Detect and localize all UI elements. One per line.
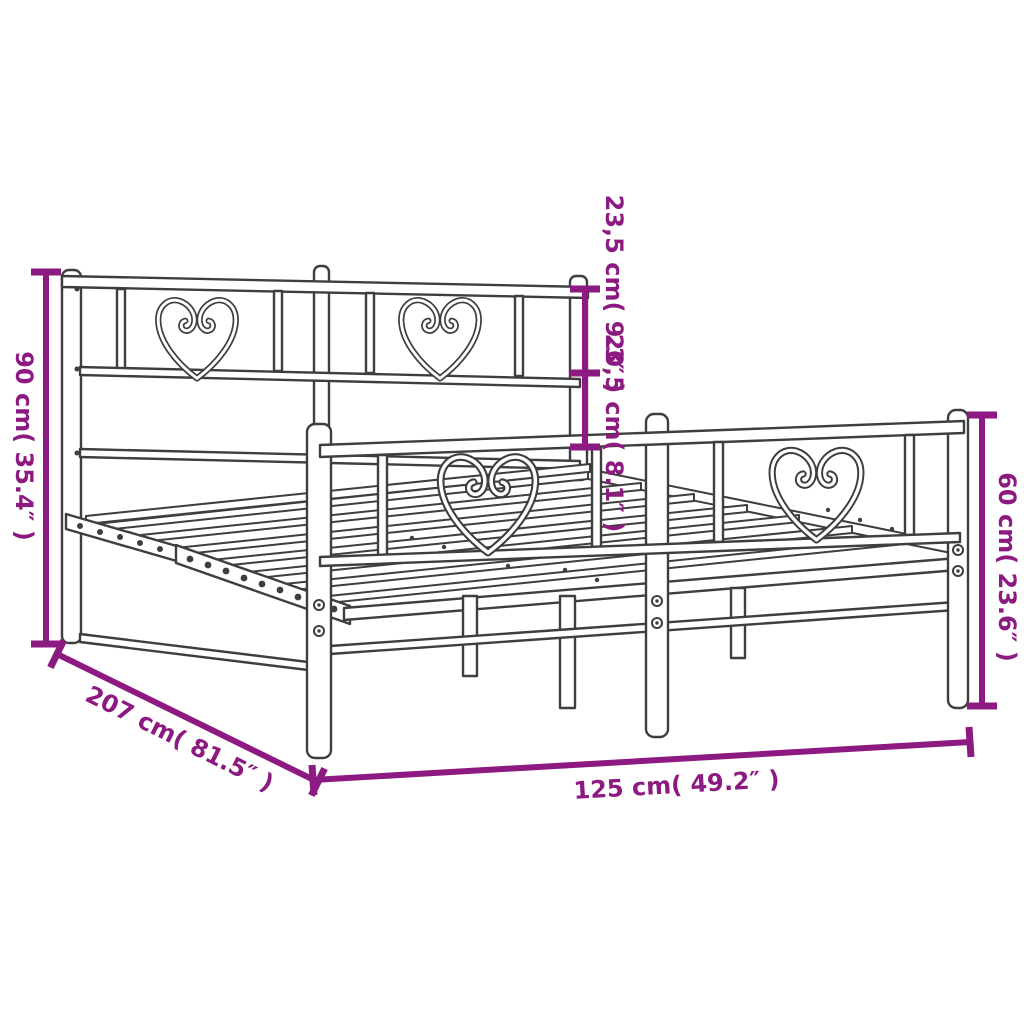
dimension-footboard-height: 60 cm( 23.6″ ) xyxy=(967,415,1021,706)
footboard-divider xyxy=(714,442,723,542)
headboard-heart-right-icon xyxy=(401,300,479,378)
side-stretcher xyxy=(80,634,308,670)
footboard-divider xyxy=(905,435,914,535)
dimension-overall-height: 90 cm( 35.4″ ) xyxy=(10,272,61,644)
footboard-right-post xyxy=(948,410,968,708)
dimension-bed-width: 125 cm( 49.2″ ) xyxy=(312,727,971,805)
bed-frame-diagram-canvas: 90 cm( 35.4″ ) 23,5 cm( 9.3″ ) 20,5 cm( … xyxy=(0,0,1024,1024)
bed-width-label: 125 cm( 49.2″ ) xyxy=(573,765,781,805)
headboard-divider xyxy=(274,291,282,371)
headboard-divider xyxy=(515,296,523,376)
footboard-center-post xyxy=(646,414,668,737)
footboard-height-label: 60 cm( 23.6″ ) xyxy=(993,472,1021,662)
headboard-divider xyxy=(117,289,125,369)
headboard-left-post xyxy=(62,270,81,643)
headboard-heart-left-icon xyxy=(158,300,236,378)
bed-length-label: 207 cm( 81.5″ ) xyxy=(81,680,278,797)
footboard-divider xyxy=(592,447,601,547)
product-dimension-diagram: 90 cm( 35.4″ ) 23,5 cm( 9.3″ ) 20,5 cm( … xyxy=(0,0,1024,1024)
bed-frame-illustration xyxy=(62,266,968,758)
footboard-left-post xyxy=(307,424,331,758)
overall-height-label: 90 cm( 35.4″ ) xyxy=(10,351,38,541)
support-leg xyxy=(560,596,575,708)
headboard-lower-section-label: 20,5 cm( 8.1″ ) xyxy=(600,334,628,533)
slat-base xyxy=(66,464,958,708)
headboard-divider xyxy=(366,293,374,373)
footboard-divider xyxy=(378,455,387,559)
footboard-top-rail xyxy=(320,421,964,457)
